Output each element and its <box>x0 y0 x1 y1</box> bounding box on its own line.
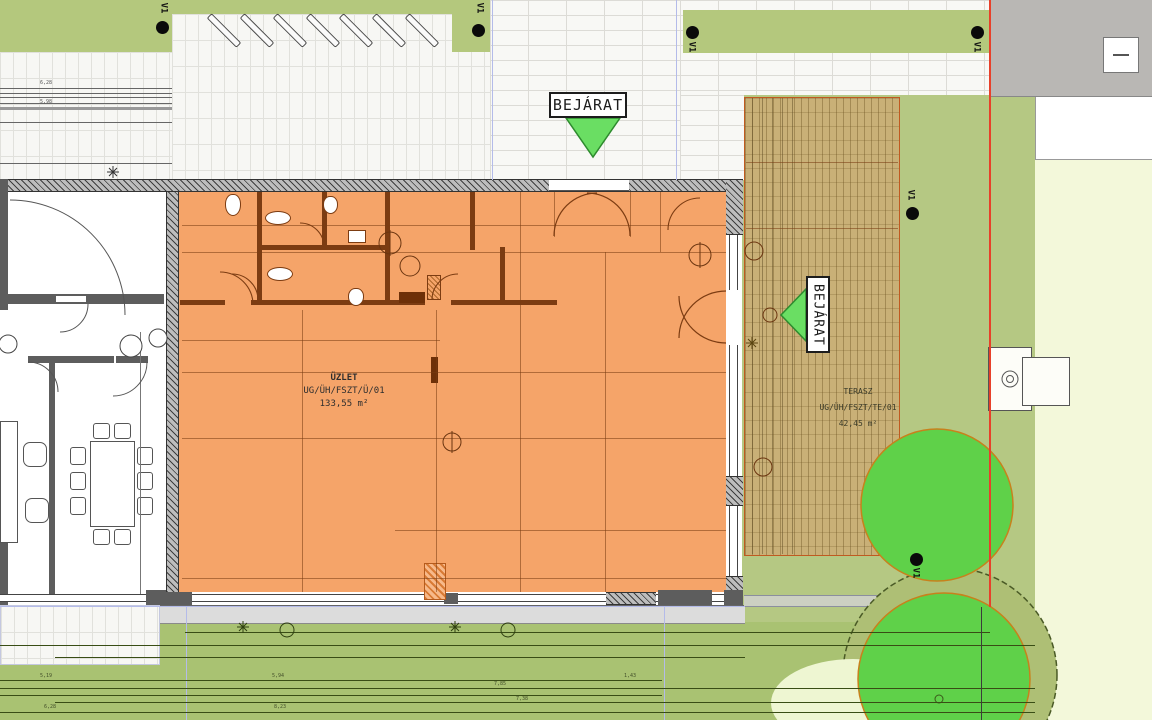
bath-wall <box>500 247 505 305</box>
paving-left <box>0 52 172 180</box>
dimension-label: 8,23 <box>274 704 286 710</box>
dim-line <box>0 97 172 98</box>
guide-line <box>0 606 745 607</box>
neighbor-door-gap <box>56 296 86 302</box>
dim-line <box>0 680 662 681</box>
v1-marker-label: V1 <box>905 190 915 201</box>
dim-line <box>0 93 172 94</box>
bath-wall <box>257 245 390 250</box>
paving-entrance-walk <box>490 0 680 180</box>
entrance-sign-side-label: BEJÁRAT <box>811 284 826 346</box>
office-chair <box>25 498 49 523</box>
chair <box>70 472 86 490</box>
dim-line <box>182 438 726 439</box>
property-boundary-red <box>989 0 991 607</box>
white-band-right <box>1035 97 1152 160</box>
counter <box>348 230 366 243</box>
dim-line <box>302 310 303 592</box>
neighbor-dim-line <box>140 332 141 594</box>
chair <box>70 497 86 515</box>
dim-line <box>182 225 726 226</box>
v1-marker-dot <box>472 24 485 37</box>
dim-line <box>185 632 990 633</box>
paving-top-band-2 <box>680 95 744 180</box>
green-strip-top-mid <box>172 0 452 14</box>
dimension-label: 6,28 <box>40 80 52 86</box>
terrace-area: 42,45 m² <box>788 416 928 432</box>
v1-marker-dot <box>686 26 699 39</box>
door-opening <box>225 300 251 305</box>
guide-line <box>492 0 493 180</box>
dim-line <box>55 657 745 658</box>
toilet <box>225 194 241 216</box>
neighbor-inner-wall <box>116 356 148 363</box>
utility-box-right <box>1022 357 1070 406</box>
legend-dash <box>1113 54 1129 56</box>
v1-marker-label: V1 <box>686 42 696 53</box>
sink <box>267 267 293 281</box>
v1-marker-label: V1 <box>474 3 484 14</box>
dim-line <box>0 695 662 696</box>
pale-corner <box>1035 160 1152 720</box>
site-plan: BEJÁRAT BEJÁRAT ÜZLET UG/ÜH/FSZT/Ü/01 13… <box>0 0 1152 720</box>
dimension-label: 5,98 <box>40 99 52 105</box>
shop-area: 133,55 m² <box>264 398 424 411</box>
terrace-dim-line <box>746 228 898 229</box>
toilet <box>323 196 338 214</box>
neighbor-window-wall <box>0 594 166 602</box>
entrance-sign-top-label: BEJÁRAT <box>553 96 623 114</box>
dim-line <box>0 107 172 110</box>
chair <box>70 447 86 465</box>
kitchen-counter-dark <box>399 292 425 303</box>
terrace-name: TERASZ <box>788 384 928 400</box>
desk <box>0 421 18 543</box>
green-strip-top-right <box>683 10 990 53</box>
terrace-dim-line <box>746 162 898 163</box>
v1-marker-label: V1 <box>158 3 168 14</box>
stair-hatched <box>424 563 446 600</box>
pillar <box>444 593 458 604</box>
entrance-door-gap <box>549 180 629 191</box>
paving-bottom-left <box>0 605 160 665</box>
dim-line <box>0 122 172 123</box>
chair <box>93 529 110 545</box>
dim-line <box>0 103 172 104</box>
pillar <box>658 590 712 605</box>
dimension-label: 5,94 <box>272 673 284 679</box>
wall-top <box>0 179 742 192</box>
conference-table <box>90 441 135 527</box>
chair <box>93 423 110 439</box>
pillar <box>146 590 166 605</box>
deck-joint <box>792 98 793 554</box>
dimension-label: 6,28 <box>44 704 56 710</box>
dimension-label: 7,38 <box>516 696 528 702</box>
v1-marker-dot <box>910 553 923 566</box>
pillar-hatched <box>606 592 656 605</box>
dim-line <box>0 645 1035 646</box>
guide-line <box>676 0 677 180</box>
shop-code: UG/ÜH/FSZT/Ü/01 <box>264 385 424 398</box>
chair <box>114 529 131 545</box>
door-opening <box>425 300 451 305</box>
window-right <box>729 345 738 476</box>
dim-line <box>182 578 726 579</box>
walkway-strip <box>160 605 745 624</box>
fence-line <box>981 607 982 720</box>
bath-wall <box>470 192 475 250</box>
dim-line <box>436 310 437 592</box>
wall-right-seg <box>726 179 743 235</box>
entrance-sign-side: BEJÁRAT <box>806 276 830 353</box>
legend-square <box>1103 37 1139 73</box>
dimension-label: 5,19 <box>40 673 52 679</box>
entrance-sign-top: BEJÁRAT <box>549 92 627 118</box>
window-right <box>729 235 738 290</box>
dim-line <box>182 340 440 341</box>
dim-line <box>0 88 172 89</box>
dim-line <box>605 252 606 592</box>
neighbor-inner-wall-v <box>49 358 55 594</box>
window-right <box>729 506 738 576</box>
v1-marker-dot <box>906 207 919 220</box>
dimension-label: 1,43 <box>624 673 636 679</box>
dim-line <box>520 192 521 592</box>
deck-joint <box>752 98 753 554</box>
dim-line <box>182 252 726 253</box>
wall-left-edge <box>0 179 8 310</box>
shop-name: ÜZLET <box>264 372 424 385</box>
gray-band-under-terrace <box>744 595 990 607</box>
office-chair <box>23 442 47 467</box>
dimension-label: 7,85 <box>494 681 506 687</box>
wall-right-seg <box>726 476 743 506</box>
v1-marker-dot <box>971 26 984 39</box>
chair <box>114 423 131 439</box>
dim-line <box>0 163 172 164</box>
dim-line <box>395 530 726 531</box>
dim-line <box>0 688 1035 689</box>
pillar <box>166 592 192 605</box>
deck-joint <box>762 98 763 554</box>
dim-line <box>660 192 661 252</box>
green-strip-top-left <box>0 0 172 52</box>
pillar <box>724 590 743 605</box>
terrace-label: TERASZ UG/ÜH/FSZT/TE/01 42,45 m² <box>788 384 928 432</box>
toilet <box>348 288 364 306</box>
dim-line <box>55 702 1035 703</box>
door-leaf <box>630 192 631 237</box>
terrace-code: UG/ÜH/FSZT/TE/01 <box>788 400 928 416</box>
deck-joint <box>782 98 783 554</box>
wall-separating <box>166 192 179 605</box>
deck-joint <box>772 98 773 554</box>
neighbor-inner-wall <box>28 356 114 363</box>
v1-marker-dot <box>156 21 169 34</box>
sink <box>265 211 291 225</box>
dim-line <box>0 712 1035 713</box>
shaft-hatched <box>427 275 441 300</box>
shop-room-label: ÜZLET UG/ÜH/FSZT/Ü/01 133,55 m² <box>264 372 424 411</box>
v1-marker-label: V1 <box>910 568 920 579</box>
v1-marker-label: V1 <box>971 42 981 53</box>
door-leaf <box>554 192 555 237</box>
